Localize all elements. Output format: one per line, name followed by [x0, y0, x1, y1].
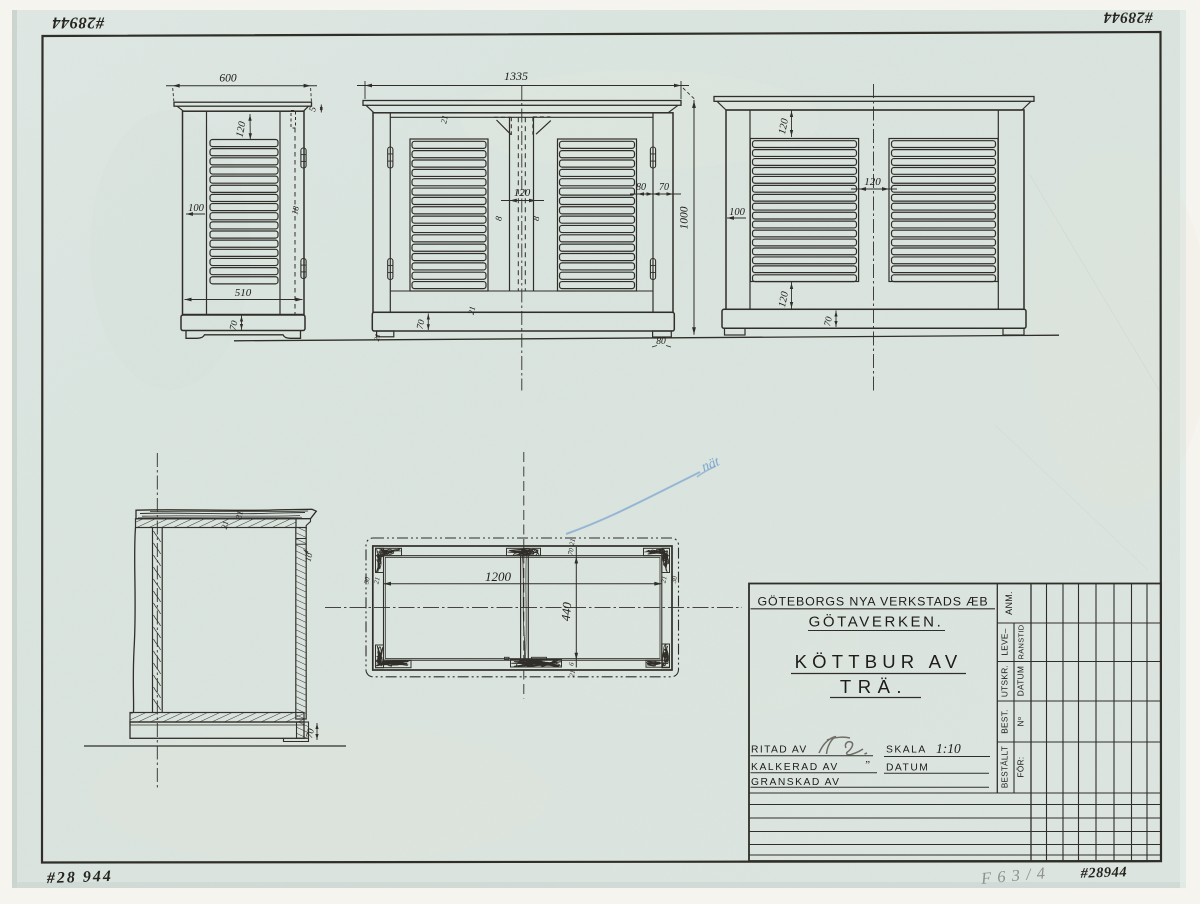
svg-text:”: ” — [864, 759, 870, 771]
svg-text:1200: 1200 — [485, 569, 512, 584]
svg-text:RITAD AV: RITAD AV — [751, 745, 808, 756]
svg-text:80: 80 — [656, 337, 666, 347]
svg-text:510: 510 — [235, 287, 252, 299]
svg-text:KALKERAD AV: KALKERAD AV — [751, 762, 839, 773]
svg-text:#28944: #28944 — [52, 14, 106, 33]
svg-text:440: 440 — [559, 601, 575, 622]
svg-text:#28 944: #28 944 — [46, 868, 114, 887]
svg-text:120: 120 — [514, 187, 531, 199]
svg-text:UTSKR.: UTSKR. — [1000, 665, 1010, 697]
svg-text:DATUM: DATUM — [1016, 666, 1026, 696]
svg-text:GRANSKAD AV: GRANSKAD AV — [751, 777, 841, 788]
svg-text:100: 100 — [729, 207, 746, 218]
svg-text:BEST.: BEST. — [1000, 709, 1010, 734]
svg-text:Nº: Nº — [1016, 717, 1026, 727]
svg-text:BESTÄLLT: BESTÄLLT — [1001, 746, 1010, 788]
svg-text:1335: 1335 — [504, 69, 528, 83]
svg-text:1:10: 1:10 — [936, 741, 961, 756]
svg-text:120: 120 — [864, 176, 881, 188]
svg-text:600: 600 — [219, 73, 237, 85]
svg-text:SKALA: SKALA — [886, 745, 927, 756]
svg-text:LEVE–: LEVE– — [1000, 628, 1010, 655]
svg-text:1000: 1000 — [679, 206, 691, 229]
svg-text:RANSTID: RANSTID — [1017, 624, 1026, 659]
svg-text:DATUM: DATUM — [886, 763, 929, 774]
svg-text:#28944: #28944 — [1079, 864, 1127, 882]
svg-text:80: 80 — [636, 182, 646, 193]
svg-text:GÖTEBORGS NYA VERKSTADS ÆB: GÖTEBORGS NYA VERKSTADS ÆB — [758, 595, 989, 609]
svg-text:KÖTTBUR AV: KÖTTBUR AV — [795, 651, 963, 672]
svg-text:GÖTAVERKEN.: GÖTAVERKEN. — [809, 613, 944, 631]
svg-text:70: 70 — [659, 182, 669, 193]
svg-text:TRÄ.: TRÄ. — [840, 676, 908, 697]
svg-text:ANM.: ANM. — [1004, 591, 1014, 615]
svg-text:#28944: #28944 — [1103, 9, 1154, 26]
svg-text:FÖR:: FÖR: — [1016, 756, 1026, 777]
svg-text:100: 100 — [188, 203, 205, 214]
